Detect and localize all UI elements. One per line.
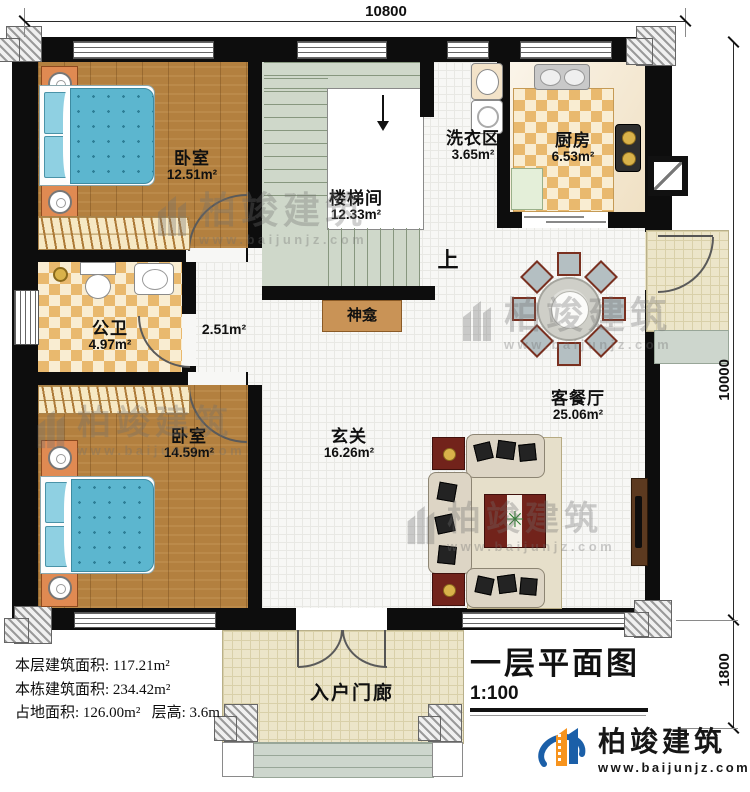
room-area: 14.59m² [139,446,239,460]
stat-footprint-line: 占地面积: 126.00m² 层高: 3.6m [15,701,220,722]
floor-plan: 神龛 ✳ 卧室 12.51m² 楼梯间 12.33m² [0,0,750,792]
main-door-leaf-right [384,630,386,667]
window-stairwell [297,41,387,59]
page-title: 一层平面图 [470,646,640,681]
shrine-label: 神龛 [347,308,377,324]
foyer-label: 玄关 16.26m² [299,428,399,460]
plant-icon: ✳ [503,508,527,532]
side-door-leaf [658,235,713,237]
stair-arrow-icon [377,121,389,131]
shrine-cabinet: 神龛 [322,300,402,332]
tv-cabinet [631,478,648,566]
wall-bedroom-bottom-east [248,385,262,608]
bathroom-label: 公卫 4.97m² [60,320,160,352]
dining-chair [512,297,536,321]
window-bedroom-top [73,41,214,59]
wardrobe [38,385,190,414]
dining-table [537,277,601,341]
main-door-leaf-left [297,630,299,667]
kitchen-slide-door-leaf [524,216,584,218]
dim-top-label: 10800 [340,4,432,20]
stair-direction-line [382,95,384,121]
side-table [432,437,465,470]
column-bottom-right [634,600,672,638]
room-area: 12.51m² [142,168,242,182]
dim-line-right [733,42,734,728]
brand-logo-icon [536,720,590,778]
wall-bedroom-stair [248,37,262,248]
column-top-right [636,26,676,66]
column-bottom-left [14,606,52,644]
wardrobe [38,216,190,250]
bed [39,85,155,186]
porch-column-left [224,704,258,742]
window-bedroom-bottom [74,612,216,628]
sofa-top [466,434,545,478]
nightstand [41,440,78,477]
entry-porch-label: 入户门廊 [302,684,402,704]
stat-total-area: 本栋建筑面积: 234.42m² [15,678,170,699]
brand-logo: 柏竣建筑 www.baijunjz.com [536,720,750,778]
title-block: 一层平面图 1:100 [470,638,656,716]
side-table [432,573,465,606]
window-laundry [447,41,489,59]
nightstand [41,570,78,607]
room-area: 3.65m² [420,148,526,162]
room-name: 卧室 [139,428,239,446]
entry-steps [252,742,434,778]
dining-chair [557,252,581,276]
wall-stair-south [262,286,435,300]
kitchen-slide-door-opening [522,212,608,228]
stair-up-label: 上 [434,250,462,272]
room-name: 玄关 [299,428,399,446]
entry-step-side-right [432,742,463,777]
room-area: 16.26m² [299,446,399,460]
sofa-left [428,472,472,574]
logo-brand-url: www.baijunjz.com [598,760,750,775]
kitchen-slide-door-leaf2 [546,221,606,223]
stat-floor-area: 本层建筑面积: 117.21m² [15,654,170,675]
room-name: 厨房 [520,132,626,150]
room-area: 6.53m² [520,150,626,164]
room-name: 楼梯间 [303,190,409,208]
window-kitchen [520,41,612,59]
kitchen-flue [648,156,688,196]
stairwell-label: 楼梯间 12.33m² [303,190,409,222]
entry-step-side-left [222,742,254,777]
dim-porch-label: 1800 [717,630,733,710]
room-name: 卧室 [142,150,242,168]
main-door-opening [296,608,387,630]
bedroom-bottom-door-opening [188,372,246,385]
stair-lower-flight [328,228,432,286]
wall-right-kitchen [645,37,672,232]
sofa-bottom [466,568,545,608]
stat-story-height: 层高: 3.6m [152,705,220,721]
room-name: 客餐厅 [528,390,628,408]
room-area: 12.33m² [303,208,409,222]
room-area: 4.97m² [60,338,160,352]
toilet-bowl-icon [85,274,111,299]
coffee-table: ✳ [484,494,546,548]
tv-icon [635,496,642,548]
dim-ext [676,620,738,621]
dim-line-top [24,21,686,22]
bathroom-sink-icon [134,263,174,295]
dining-chair [602,297,626,321]
stair-upper-flight [264,78,328,200]
wall-stair-east [420,37,434,117]
room-name: 公卫 [60,320,160,338]
bed [40,476,155,574]
room-name: 洗衣区 [420,130,526,148]
stair-top-landing [264,62,420,90]
title-rule-thin [470,715,646,716]
stat-footprint: 占地面积: 126.00m² [15,705,140,721]
bedroom-bottom-label: 卧室 14.59m² [139,428,239,460]
porch-column-right [428,704,462,742]
fridge-icon [511,168,543,210]
kitchen-label: 厨房 6.53m² [520,132,626,164]
title-rule-thick [470,708,648,712]
floor-drain-icon [53,267,68,282]
laundry-sink-icon [471,63,503,100]
living-dining-label: 客餐厅 25.06m² [528,390,628,422]
bedroom-top-label: 卧室 12.51m² [142,150,242,182]
hallway-area-label: 2.51m² [200,322,248,337]
window-bathroom [14,290,39,345]
dim-right-label: 10000 [717,340,733,420]
kitchen-sink-icon [534,64,590,90]
logo-brand-name: 柏竣建筑 [598,728,750,756]
title-scale: 1:100 [470,683,519,704]
dining-chair [557,342,581,366]
window-living [462,612,627,628]
room-area: 25.06m² [528,408,628,422]
laundry-label: 洗衣区 3.65m² [420,130,526,162]
